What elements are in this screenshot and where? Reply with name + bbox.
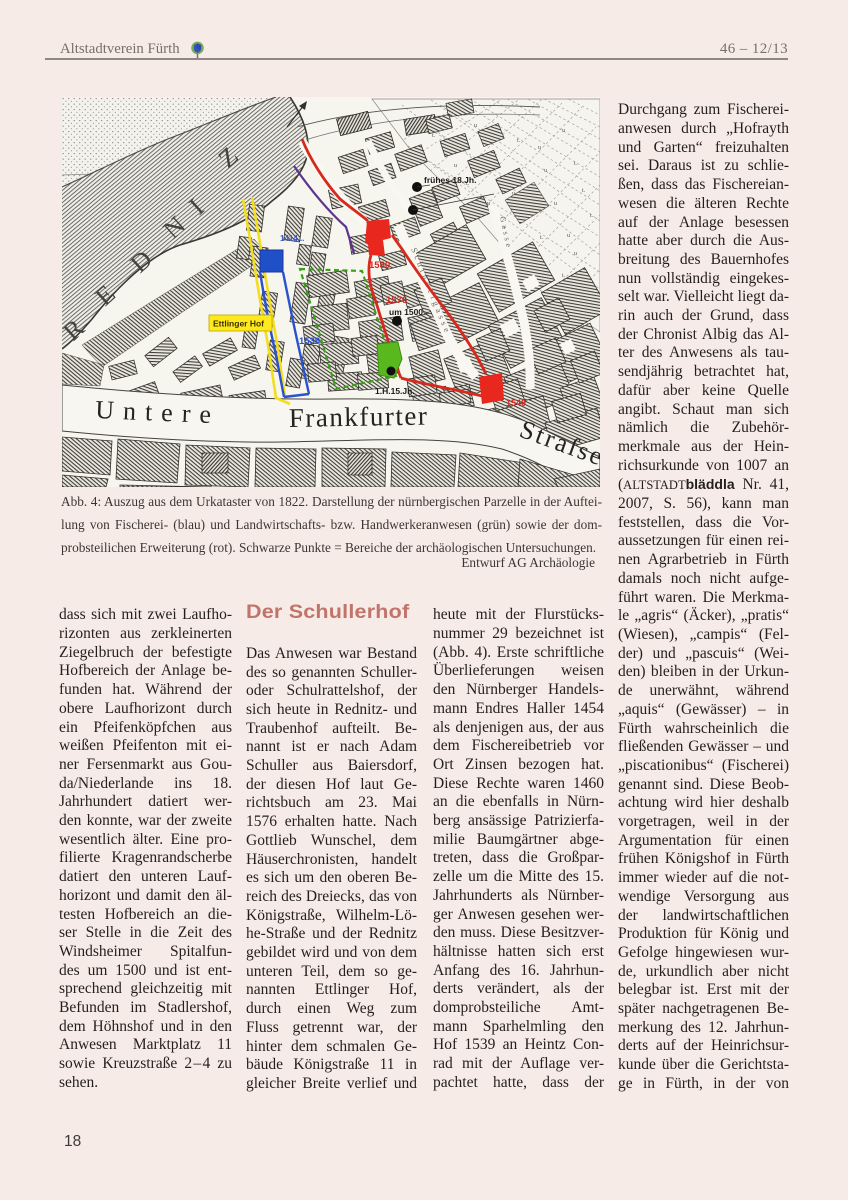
svg-text:t.: t. [590,213,594,219]
svg-text:Frankfurter: Frankfurter [289,401,429,433]
svg-text:t.: t. [574,161,578,167]
svg-text:frühes 18.Jh.: frühes 18.Jh. [424,175,476,185]
svg-text:u: u [554,201,557,207]
svg-text:1580: 1580 [369,260,390,271]
svg-text:1539: 1539 [299,336,320,347]
svg-text:t.: t. [540,235,544,241]
svg-text:1576: 1576 [386,295,407,306]
svg-text:u: u [474,123,477,129]
svg-text:u: u [538,145,541,151]
svg-text:u: u [567,233,570,239]
svg-text:Untere: Untere [95,395,221,429]
svg-text:t.: t. [582,188,586,194]
svg-text:u: u [562,128,565,134]
svg-text:1414...: 1414... [280,234,304,243]
svg-text:1540: 1540 [506,398,526,408]
svg-text:u: u [454,163,457,169]
svg-text:t.: t. [562,273,566,279]
svg-text:um 1500: um 1500 [389,307,423,317]
svg-text:t.: t. [517,138,521,144]
svg-text:u: u [574,251,577,257]
svg-text:Ettlinger Hof: Ettlinger Hof [213,319,264,329]
svg-text:t.: t. [432,133,436,139]
svg-text:u: u [544,168,547,174]
svg-text:1.H.15.Jh.: 1.H.15.Jh. [375,386,415,396]
